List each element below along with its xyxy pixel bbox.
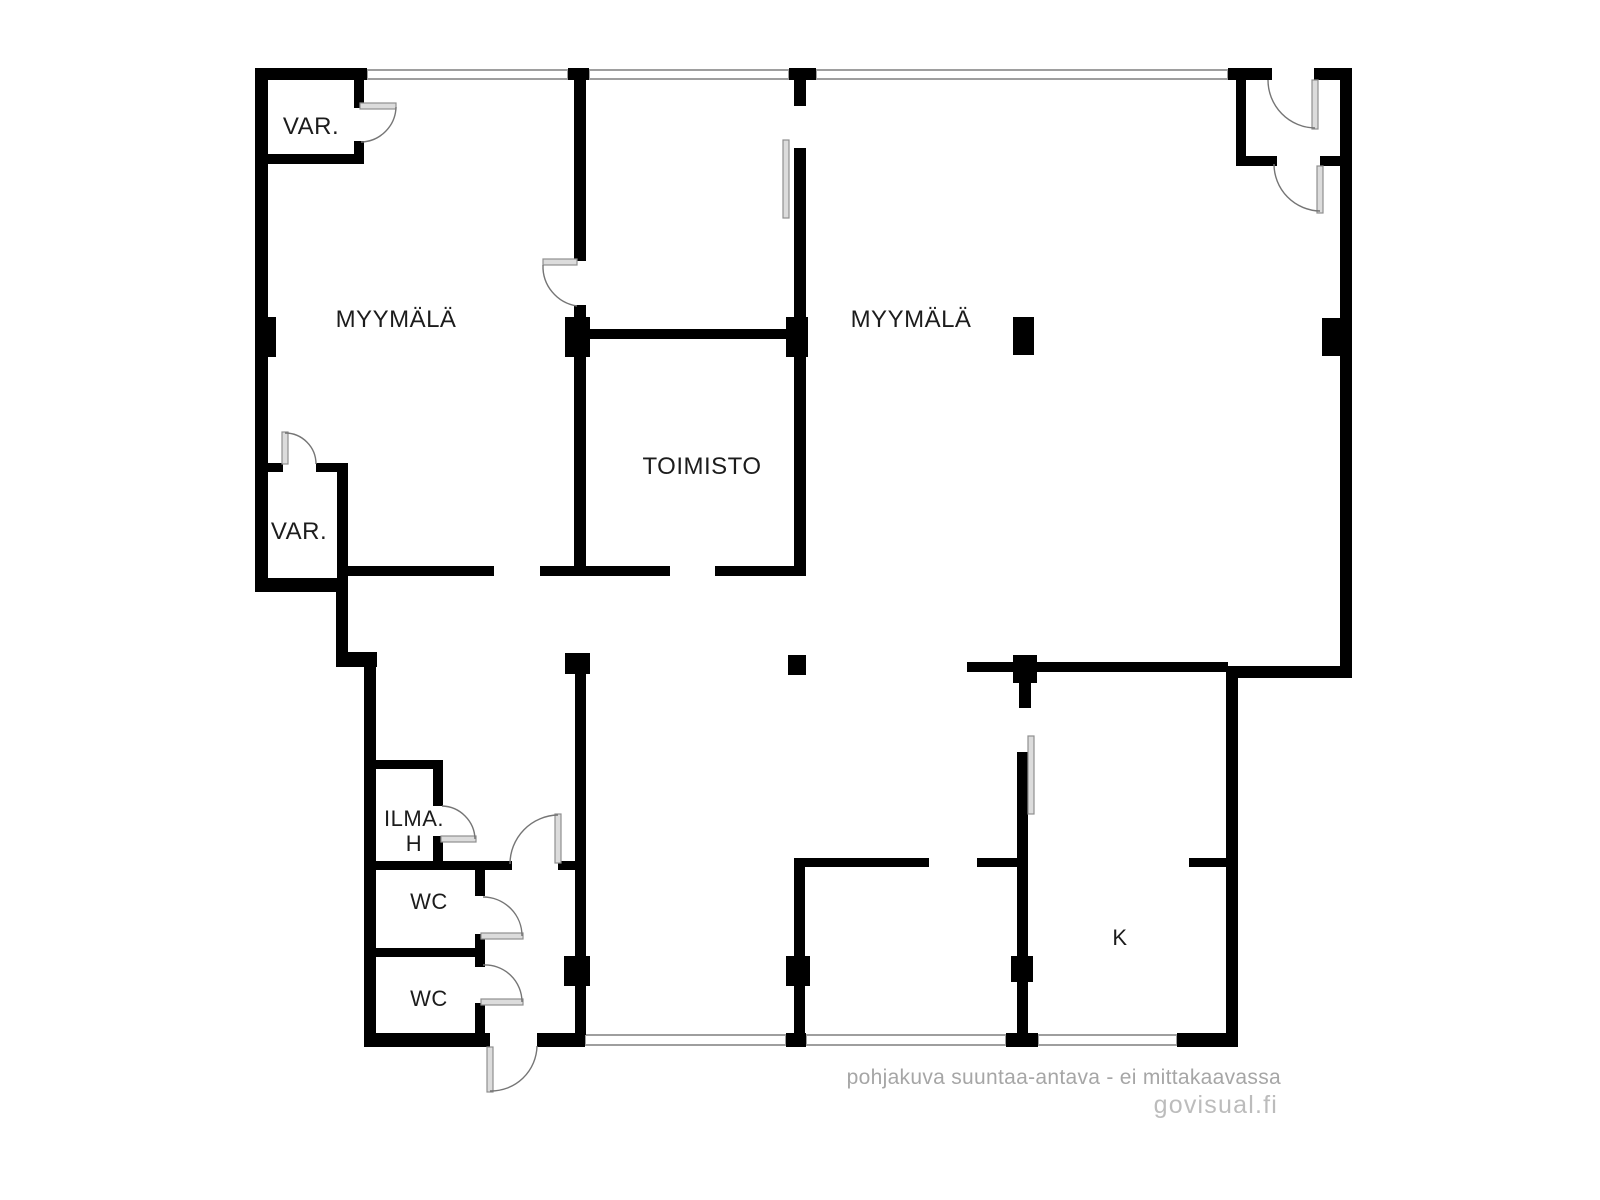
outer-top-wall-right-a <box>1228 68 1272 80</box>
top-window-pillar-2 <box>789 68 816 80</box>
pillar-center-left <box>565 653 590 674</box>
bottom-wall-mid <box>537 1033 585 1047</box>
vestibule-left-wall <box>1236 68 1246 166</box>
wc-divider-wall <box>364 948 479 957</box>
exit-door-leaf <box>487 1047 493 1092</box>
ilmah-right-wall-upper <box>433 760 443 806</box>
pillar-left-wall <box>255 317 276 357</box>
top-window-1 <box>367 70 568 79</box>
room-label-k: K <box>1112 925 1127 950</box>
entrance-inner-door-leaf <box>1317 166 1323 213</box>
room-wall-x800 <box>794 866 805 1035</box>
right-step-wall <box>1228 666 1352 678</box>
corridor-top-wall <box>364 861 512 870</box>
partition-sliding-leaf <box>783 140 789 218</box>
room-label-var-1: VAR. <box>283 113 339 140</box>
toimisto-right-wall <box>794 357 806 571</box>
lower-right-wall <box>1226 666 1238 1047</box>
ilmah-door-arc <box>442 806 475 839</box>
outer-top-wall-left <box>255 68 367 80</box>
pillar-k-top <box>1013 655 1037 683</box>
k-left-wall-stub <box>1019 683 1031 708</box>
room-label-wc-1: WC <box>410 889 448 914</box>
pillar-center-freestanding <box>788 655 806 675</box>
bottom-window-3 <box>1038 1035 1177 1045</box>
floor-plan-page: VAR.MYYMÄLÄMYYMÄLÄTOIMISTOVAR.ILMA.HWCWC… <box>0 0 1600 1200</box>
var2-door-arc <box>285 433 316 464</box>
corridor-top-wall-right <box>558 861 586 870</box>
var1-door-arc <box>361 107 396 142</box>
hall-top-wall-right <box>977 858 1021 867</box>
entrance-inner-door-arc <box>1274 164 1320 211</box>
k-left-wall <box>1017 752 1028 1035</box>
room-label-toimisto: TOIMISTO <box>642 453 761 480</box>
room-label-wc-2: WC <box>410 986 448 1011</box>
mid-wall-left <box>347 566 494 576</box>
pillar-k-bottom <box>1006 1033 1038 1047</box>
var2-bottom-wall <box>255 578 347 592</box>
bottom-right-corner-wall <box>1177 1033 1238 1047</box>
var1-right-wall-lower <box>354 141 364 164</box>
bottom-wall-left <box>364 1033 490 1047</box>
partition-top-stub <box>794 80 806 106</box>
room-label-var-2: VAR. <box>271 518 327 545</box>
corridor-door-leaf <box>555 814 561 863</box>
top-window-pillar-1 <box>568 68 589 80</box>
wc2-right-wall-lower <box>475 1003 485 1035</box>
partition-wall-upper <box>574 80 586 261</box>
pillar-x800-bottom <box>786 1033 806 1047</box>
var1-door-leaf <box>360 103 396 109</box>
top-window-3 <box>816 70 1228 79</box>
wc2-door-arc <box>483 965 522 1002</box>
vestibule-bottom-wall-right <box>1320 156 1342 166</box>
entrance-outer-door-arc <box>1268 80 1315 128</box>
pillar-x800 <box>786 956 810 986</box>
room-label-myymala-right: MYYMÄLÄ <box>851 306 972 333</box>
pillar-right-wall <box>1322 318 1340 356</box>
entrance-outer-door-leaf <box>1312 80 1318 129</box>
left-step-vertical-wall <box>336 578 348 660</box>
wc2-door-leaf <box>481 999 523 1005</box>
exit-door-arc <box>490 1046 537 1091</box>
pillar-center-wall <box>564 956 590 986</box>
corridor-door-arc <box>510 815 558 864</box>
mid-wall-right <box>715 566 806 576</box>
var2-right-wall <box>337 463 348 583</box>
lower-left-wall <box>364 652 376 1047</box>
mid-wall-center <box>540 566 670 576</box>
hall-top-wall-left <box>794 858 929 867</box>
toimisto-right-wall-upper <box>794 148 806 317</box>
toimisto-door-arc <box>543 265 577 306</box>
top-window-2 <box>589 70 789 79</box>
mid-right-wall <box>967 662 1228 672</box>
room-label-ilma: ILMA. <box>384 806 444 831</box>
k-top-stub <box>1189 858 1228 867</box>
pillar-myymala-right <box>1013 317 1034 355</box>
room-label-ilma-h: H <box>406 831 422 856</box>
wc1-door-arc <box>483 897 522 936</box>
toimisto-left-wall <box>574 357 586 571</box>
var1-bottom-wall <box>262 154 364 164</box>
vestibule-bottom-wall-left <box>1236 156 1277 166</box>
var2-top-wall-left <box>262 463 283 472</box>
room-label-myymala-left: MYYMÄLÄ <box>336 306 457 333</box>
var2-door-leaf <box>282 432 288 464</box>
brand-watermark: govisual.fi <box>1154 1091 1278 1120</box>
pillar-k-left <box>1011 956 1033 982</box>
toimisto-door-leaf <box>543 259 577 265</box>
floor-plan-drawing: VAR.MYYMÄLÄMYYMÄLÄTOIMISTOVAR.ILMA.HWCWC… <box>0 0 1600 1200</box>
k-sliding-leaf <box>1028 736 1034 814</box>
ilmah-door-leaf <box>441 836 476 842</box>
wc1-right-wall-upper <box>475 868 485 896</box>
bottom-window-2 <box>806 1035 1006 1045</box>
disclaimer-text: pohjakuva suuntaa-antava - ei mittakaava… <box>847 1066 1281 1090</box>
toimisto-top-wall <box>574 329 806 339</box>
pillar-toimisto-top-right <box>786 317 808 357</box>
ilmah-top-wall <box>364 760 442 769</box>
bottom-window-1 <box>585 1035 786 1045</box>
wc1-door-leaf <box>481 933 523 939</box>
